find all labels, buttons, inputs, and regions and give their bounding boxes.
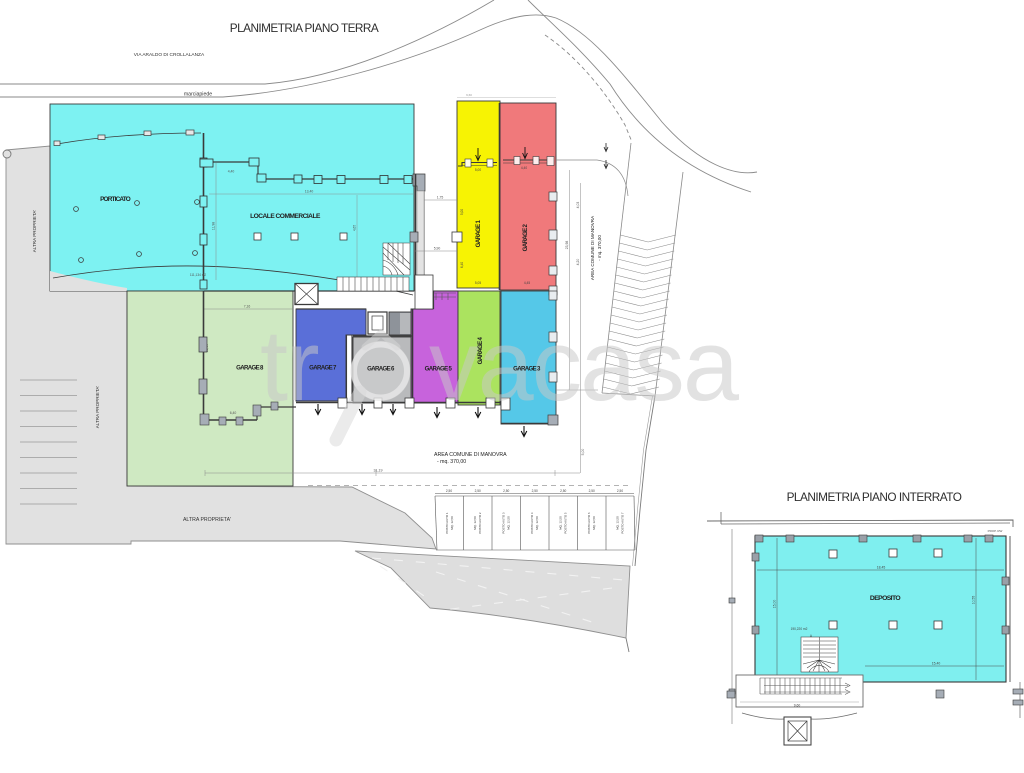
svg-text:10,55: 10,55 bbox=[972, 596, 976, 605]
svg-text:2,50: 2,50 bbox=[503, 489, 509, 493]
svg-text:9,60: 9,60 bbox=[794, 704, 801, 708]
svg-text:ALTRA PROPRIETA': ALTRA PROPRIETA' bbox=[183, 517, 231, 523]
svg-text:15,40: 15,40 bbox=[932, 662, 941, 666]
svg-text:PORTICATO: PORTICATO bbox=[100, 196, 131, 203]
svg-text:MQ. 12,50: MQ. 12,50 bbox=[450, 516, 454, 530]
svg-text:13,40: 13,40 bbox=[305, 190, 314, 194]
svg-text:MQ. 12,50: MQ. 12,50 bbox=[535, 516, 539, 530]
svg-text:5,00: 5,00 bbox=[475, 168, 481, 172]
svg-text:111,134 m2: 111,134 m2 bbox=[190, 273, 207, 277]
svg-text:- mq. 370,00: - mq. 370,00 bbox=[437, 459, 466, 465]
svg-text:GARAGE 6: GARAGE 6 bbox=[367, 366, 395, 373]
svg-text:POSTO AUTO 7: POSTO AUTO 7 bbox=[621, 512, 625, 533]
svg-text:4,65: 4,65 bbox=[353, 225, 357, 231]
svg-text:marciapiede: marciapiede bbox=[184, 92, 212, 98]
svg-text:POSTO AUTO 4: POSTO AUTO 4 bbox=[530, 512, 534, 533]
svg-text:MQ. 12,50: MQ. 12,50 bbox=[616, 516, 620, 530]
svg-text:18,45: 18,45 bbox=[877, 566, 886, 570]
svg-text:POSTO AUTO 3: POSTO AUTO 3 bbox=[502, 512, 506, 533]
svg-text:GARAGE 5: GARAGE 5 bbox=[425, 366, 453, 373]
svg-text:ALTRA PROPRIETA': ALTRA PROPRIETA' bbox=[95, 386, 100, 429]
svg-text:2,50: 2,50 bbox=[532, 489, 538, 493]
svg-text:AREA COMUNE DI MANOVRA: AREA COMUNE DI MANOVRA bbox=[434, 452, 507, 458]
svg-text:4,45: 4,45 bbox=[524, 281, 530, 285]
svg-text:GARAGE 3: GARAGE 3 bbox=[513, 366, 541, 373]
svg-text:190,220 m2: 190,220 m2 bbox=[791, 627, 808, 631]
svg-text:GARAGE 7: GARAGE 7 bbox=[309, 365, 337, 372]
svg-text:6,40: 6,40 bbox=[230, 411, 237, 415]
svg-text:vacasa: vacasa bbox=[429, 310, 740, 422]
svg-text:4,40: 4,40 bbox=[228, 170, 235, 174]
svg-text:GARAGE 8: GARAGE 8 bbox=[236, 365, 264, 372]
svg-text:5,00: 5,00 bbox=[460, 209, 464, 215]
svg-text:7,16: 7,16 bbox=[244, 305, 251, 309]
svg-text:ALTRA PROPRIETA': ALTRA PROPRIETA' bbox=[32, 210, 37, 253]
svg-text:POSTO AUTO 6: POSTO AUTO 6 bbox=[587, 512, 591, 533]
svg-text:5,05: 5,05 bbox=[475, 281, 481, 285]
svg-text:MQ. 12,50: MQ. 12,50 bbox=[507, 516, 511, 530]
svg-text:2,50: 2,50 bbox=[475, 489, 481, 493]
svg-text:- mq. 370,00: - mq. 370,00 bbox=[597, 235, 602, 261]
svg-text:MQ. 12,50: MQ. 12,50 bbox=[559, 516, 563, 530]
svg-text:4,20: 4,20 bbox=[576, 259, 580, 266]
svg-text:2,50: 2,50 bbox=[617, 489, 623, 493]
svg-text:POSTO AUTO 5: POSTO AUTO 5 bbox=[564, 512, 568, 533]
svg-text:GARAGE 1: GARAGE 1 bbox=[475, 219, 482, 247]
svg-text:31,19: 31,19 bbox=[374, 469, 383, 473]
svg-text:POSTO AUTO 2: POSTO AUTO 2 bbox=[478, 512, 482, 533]
svg-text:VIA ARALDO DI CROLLALANZA: VIA ARALDO DI CROLLALANZA bbox=[134, 52, 205, 58]
svg-text:11,98: 11,98 bbox=[212, 222, 216, 230]
svg-text:GARAGE 4: GARAGE 4 bbox=[477, 336, 484, 364]
svg-text:POSTO AUTO 1: POSTO AUTO 1 bbox=[445, 512, 449, 533]
svg-text:PLANIMETRIA PIANO TERRA: PLANIMETRIA PIANO TERRA bbox=[230, 21, 379, 35]
svg-text:4,40: 4,40 bbox=[521, 166, 527, 170]
svg-text:2,50: 2,50 bbox=[589, 489, 595, 493]
svg-text:1,75: 1,75 bbox=[437, 196, 444, 200]
svg-text:MQ. 12,50: MQ. 12,50 bbox=[592, 516, 596, 530]
svg-text:2,50: 2,50 bbox=[446, 489, 452, 493]
svg-text:5,90: 5,90 bbox=[434, 247, 441, 251]
svg-text:5,00: 5,00 bbox=[581, 449, 585, 456]
svg-text:23,98: 23,98 bbox=[565, 241, 569, 250]
svg-text:15,00: 15,00 bbox=[773, 600, 777, 609]
svg-text:PLANIMETRIA PIANO INTERRATO: PLANIMETRIA PIANO INTERRATO bbox=[787, 490, 962, 504]
svg-text:AREA COMUNE DI MANOVRA: AREA COMUNE DI MANOVRA bbox=[590, 215, 595, 280]
svg-text:MQ. 12,50: MQ. 12,50 bbox=[473, 516, 477, 530]
svg-text:4,03: 4,03 bbox=[576, 202, 580, 209]
svg-text:9,60: 9,60 bbox=[466, 93, 472, 97]
svg-text:2,50: 2,50 bbox=[560, 489, 566, 493]
svg-text:LOCALE COMMERCIALE: LOCALE COMMERCIALE bbox=[250, 213, 321, 220]
svg-text:DEPOSITO: DEPOSITO bbox=[870, 595, 901, 602]
svg-text:6,40: 6,40 bbox=[460, 262, 464, 268]
svg-text:GARAGE 2: GARAGE 2 bbox=[522, 223, 529, 251]
svg-text:PROP. RW: PROP. RW bbox=[988, 529, 1003, 533]
